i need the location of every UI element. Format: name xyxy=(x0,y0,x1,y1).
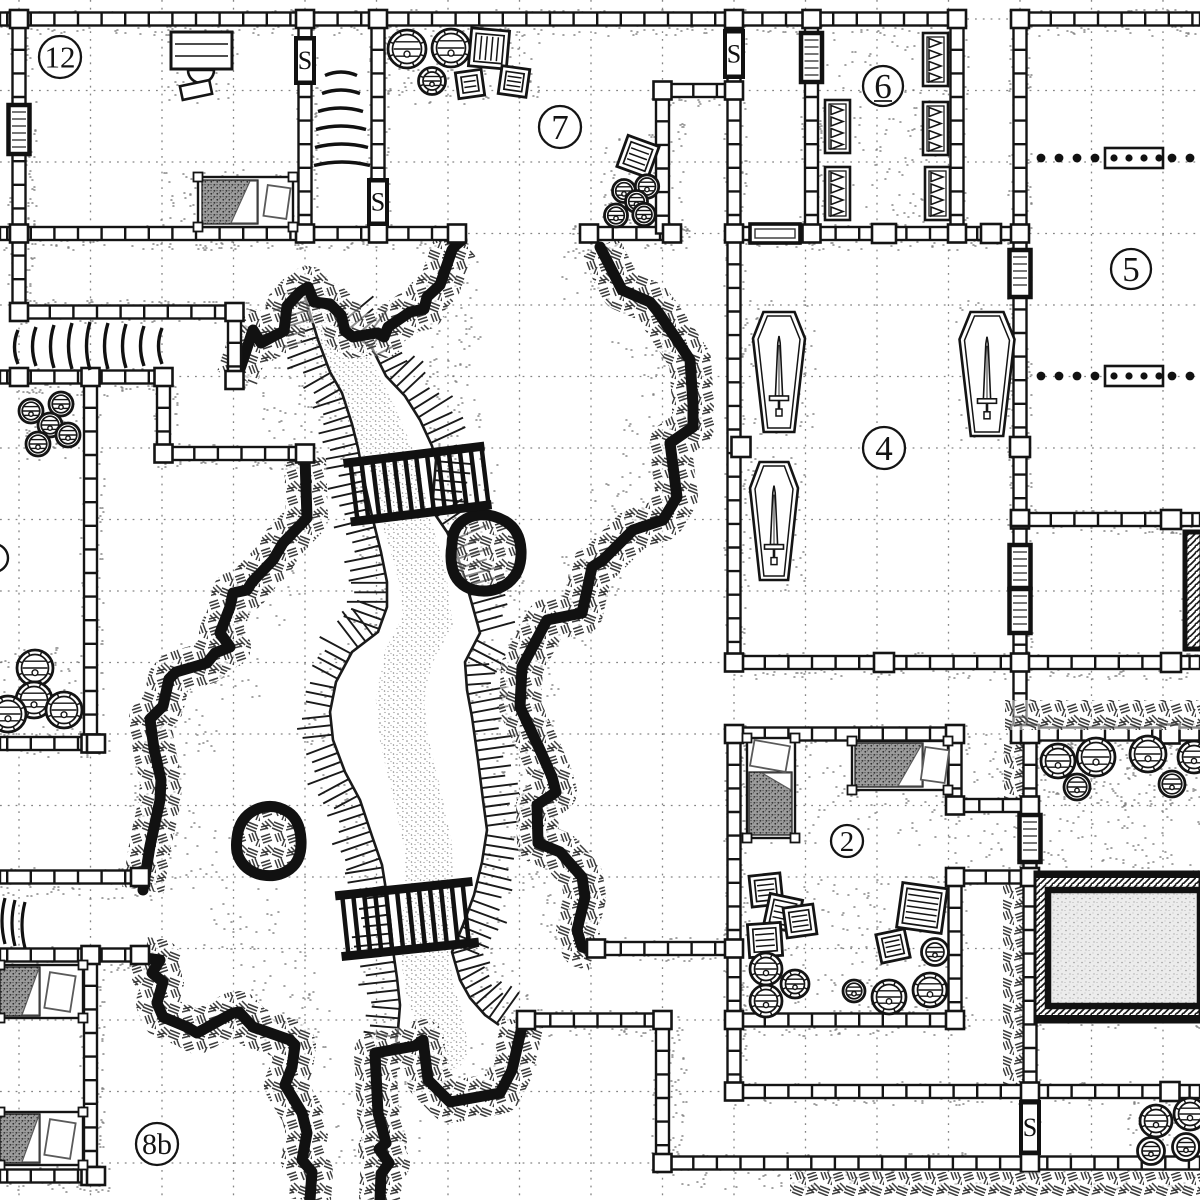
svg-text:6: 6 xyxy=(874,67,892,106)
svg-text:4: 4 xyxy=(875,429,893,468)
svg-text:S: S xyxy=(1023,1113,1037,1142)
svg-text:S: S xyxy=(298,46,312,75)
svg-text:5: 5 xyxy=(1122,250,1140,289)
svg-text:S: S xyxy=(727,40,741,69)
svg-text:S: S xyxy=(371,188,385,217)
svg-text:2: 2 xyxy=(840,826,855,858)
svg-text:8b: 8b xyxy=(142,1128,172,1161)
svg-text:7: 7 xyxy=(551,108,569,147)
svg-text:12: 12 xyxy=(45,40,76,75)
